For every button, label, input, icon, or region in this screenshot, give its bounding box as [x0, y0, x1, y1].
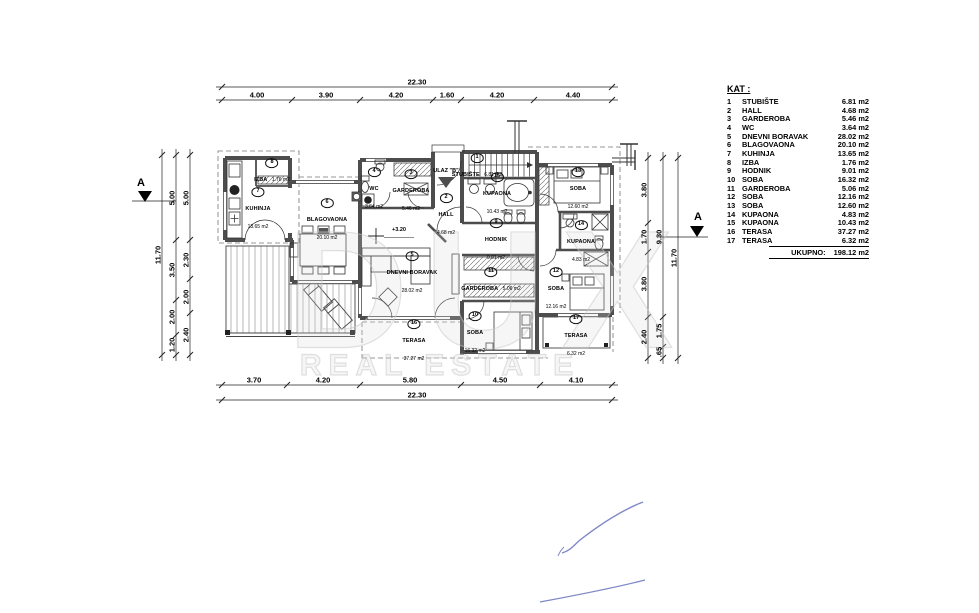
dim-right-seg: .65 — [655, 346, 663, 358]
dim-top-seg: 4.20 — [489, 91, 506, 99]
room-label-terasa16: 16 TERASA 37.27 m2 — [402, 311, 425, 365]
room-label-izba: 8 IZBA 1.76 m2 — [254, 150, 290, 186]
dim-right-seg: 3.80 — [640, 276, 648, 293]
room-label-wc: 4 WC 3.64 m2 — [365, 159, 383, 213]
dim-bottom-seg: 5.80 — [402, 376, 419, 384]
legend-row: 17 TERASA 6.32 m2 — [727, 237, 869, 246]
dim-left-seg: 2.40 — [182, 327, 190, 344]
room-label-blagovaona: 6 BLAGOVAONA 20.10 m2 — [307, 190, 347, 244]
dim-top-seg: 1.60 — [439, 91, 456, 99]
dim-left-seg: 2.00 — [182, 289, 190, 306]
dim-bottom-seg: 4.20 — [315, 376, 332, 384]
floor-plan-page: DUX REAL ESTATE 22.30 4.00 3.90 4.20 1.6… — [0, 0, 979, 613]
dim-bottom-total: 22.30 — [407, 391, 428, 399]
room-label-garderoba11: 11 GARDEROBA 5.06 m2 — [461, 259, 521, 295]
column-icon — [352, 192, 361, 201]
dim-right-seg: 1.70 — [640, 229, 648, 246]
dim-left-seg: 5.00 — [168, 190, 176, 207]
dim-left-seg: 3.50 — [168, 262, 176, 279]
bed-soba10 — [486, 312, 532, 350]
dim-bottom-seg: 3.70 — [246, 376, 263, 384]
kitchen-counter — [227, 161, 242, 238]
dim-top-seg: 4.00 — [249, 91, 266, 99]
room-label-kuhinja: 7 KUHINJA 13.65 m2 — [245, 179, 270, 233]
dim-right-total: 11.70 — [670, 248, 678, 268]
dim-left-seg: 1.20 — [168, 337, 176, 354]
signature-strokes — [540, 502, 645, 602]
dim-top-seg: 4.20 — [388, 91, 405, 99]
room-label-soba10: 10 SOBA 16.32 m2 — [465, 303, 486, 357]
legend-total-row: UKUPNO: 198.12 m2 — [769, 246, 869, 259]
legend-total-value: 198.12 m2 — [834, 248, 869, 257]
room-label-garderoba3: 3 GARDEROBA 5.46 m2 — [393, 161, 430, 215]
dim-left-seg: 2.30 — [182, 252, 190, 269]
dim-top-seg: 4.40 — [565, 91, 582, 99]
room-label-soba13: 13 SOBA 12.60 m2 — [568, 159, 589, 213]
dim-top-seg: 3.90 — [318, 91, 335, 99]
level-marker-icon — [368, 228, 414, 244]
room-label-hodnik: 9 HODNIK 9.01 m2 — [485, 210, 507, 264]
dim-top-total: 22.30 — [407, 78, 428, 86]
room-label-soba12: 12 SOBA 12.16 m2 — [546, 259, 567, 313]
dim-left-seg: 2.00 — [168, 309, 176, 326]
dim-left-total: 11.70 — [154, 245, 162, 265]
dim-bottom-seg: 4.50 — [492, 376, 509, 384]
dim-left-seg: 5.00 — [182, 190, 190, 207]
dim-right-seg: 3.80 — [640, 182, 648, 199]
room-label-dnevni-boravak: 5 DNEVNI BORAVAK 28.02 m2 — [387, 243, 438, 297]
room-label-kupaona15: 15 KUPAONA 10.43 m2 — [483, 164, 511, 218]
section-marker-a-left: A — [137, 177, 145, 189]
dim-bottom-seg: 4.10 — [568, 376, 585, 384]
dim-right-seg: 1.75 — [655, 323, 663, 340]
legend-total-label: UKUPNO: — [791, 248, 826, 257]
bed-soba12 — [562, 274, 604, 310]
room-label-terasa17: 17 TERASA 6.32 m2 — [564, 306, 587, 360]
room-label-kupaona14: 14 KUPAONA 4.83 m2 — [567, 212, 595, 266]
room-label-hall: 2 HALL 4.68 m2 — [437, 185, 455, 239]
room-legend: KAT : 1 STUBIŠTE 6.81 m2 2 HALL 4.68 m2 … — [727, 84, 869, 259]
dim-right-seg: 9.30 — [655, 229, 663, 246]
dim-right-seg: 2.40 — [640, 329, 648, 346]
section-marker-a-right: A — [694, 211, 702, 223]
level-marker-label: +3.20 — [392, 227, 406, 233]
legend-title: KAT : — [727, 84, 869, 94]
